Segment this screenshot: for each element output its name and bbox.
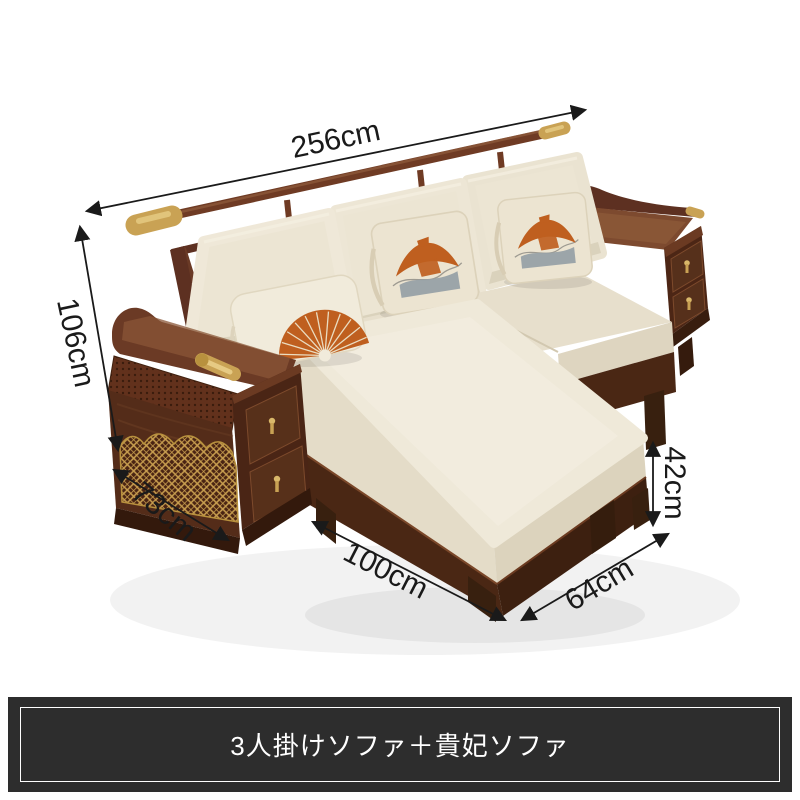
dimension-label: 256cm <box>288 114 383 165</box>
dimension-total-height: 106cm <box>50 227 118 450</box>
cabinet-leg <box>678 337 694 376</box>
sofa-illustration: 256cm 106cm 73cm 100cm 64cm 42cm <box>0 0 800 800</box>
sofa-leg <box>644 390 666 450</box>
caption-border: 3人掛けソファ＋貴妃ソファ <box>20 707 780 782</box>
pagoda-pillow-right <box>492 192 594 289</box>
dimension-base-height: 42cm <box>653 443 691 525</box>
product-dimension-figure: 256cm 106cm 73cm 100cm 64cm 42cm 3人掛けソファ… <box>0 0 800 800</box>
caption-bar: 3人掛けソファ＋貴妃ソファ <box>8 697 792 792</box>
dimension-label: 42cm <box>658 446 691 519</box>
brass-tip-icon <box>690 211 700 214</box>
product-caption: 3人掛けソファ＋貴妃ソファ <box>230 726 569 763</box>
